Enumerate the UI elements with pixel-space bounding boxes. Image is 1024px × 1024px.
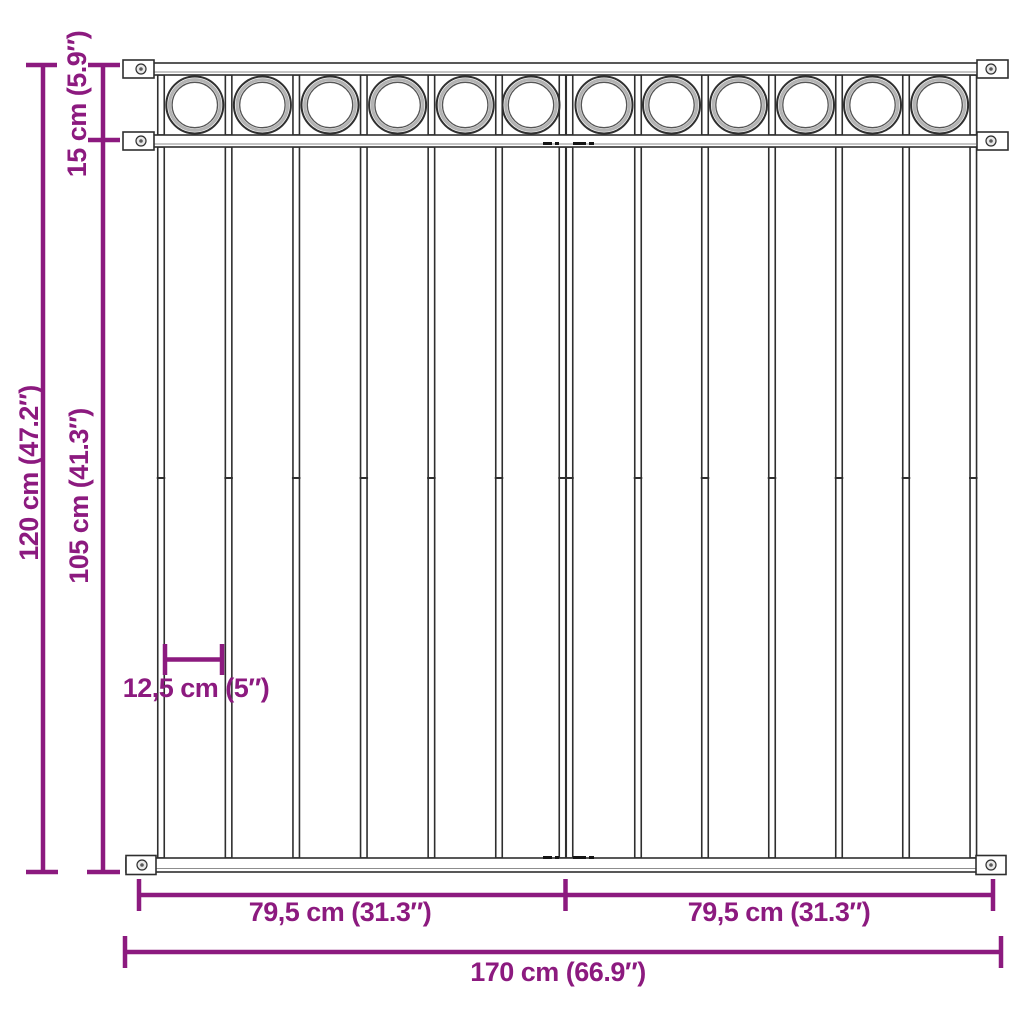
ornament-circle-inner bbox=[307, 82, 352, 127]
ornament-circle-outer bbox=[369, 77, 426, 134]
fence-post bbox=[836, 75, 843, 135]
fence-bar bbox=[225, 147, 232, 858]
fence-bar bbox=[635, 147, 642, 858]
ornament-circle-inner bbox=[443, 82, 488, 127]
fence-panel-drawing: 120 cm (47.2″) 15 cm (5.9″) 105 cm (41.3… bbox=[0, 0, 1024, 1024]
ornament-circle-ring bbox=[579, 80, 630, 131]
ornament-circle-inner bbox=[240, 82, 285, 127]
dim-top-section-label: 15 cm (5.9″) bbox=[62, 31, 92, 178]
fence-bar bbox=[566, 147, 573, 858]
ornament-circle-inner bbox=[581, 82, 626, 127]
dim-bar-spacing-label: 12,5 cm (5″) bbox=[123, 673, 270, 703]
fence-post bbox=[158, 75, 165, 135]
fence-bar bbox=[496, 147, 503, 858]
ornament-circle-inner bbox=[649, 82, 694, 127]
ornament-circle-outer bbox=[911, 77, 968, 134]
ornament-circle-outer bbox=[302, 77, 359, 134]
fence-post bbox=[769, 75, 776, 135]
fence-bar bbox=[428, 147, 435, 858]
fence-post bbox=[566, 75, 573, 135]
ornament-circle-outer bbox=[166, 77, 223, 134]
ornament-circle-inner bbox=[783, 82, 828, 127]
ornament-circle-inner bbox=[172, 82, 217, 127]
fence-post bbox=[702, 75, 709, 135]
ornament-circle-inner bbox=[850, 82, 895, 127]
fence-post bbox=[293, 75, 300, 135]
fence-post bbox=[903, 75, 910, 135]
ornament-circle-ring bbox=[646, 80, 697, 131]
ornament-circle-outer bbox=[710, 77, 767, 134]
ornament-circle-outer bbox=[576, 77, 633, 134]
dim-left-half-label: 79,5 cm (31.3″) bbox=[249, 897, 432, 927]
ornament-circle-ring bbox=[372, 80, 423, 131]
ornament-circle-inner bbox=[716, 82, 761, 127]
fence-post bbox=[361, 75, 368, 135]
ornament-circle-ring bbox=[170, 80, 221, 131]
ornament-circle-ring bbox=[713, 80, 764, 131]
ornament-circle-inner bbox=[375, 82, 420, 127]
top-rail bbox=[150, 63, 978, 75]
fence-bar bbox=[559, 147, 566, 858]
ornament-circle-ring bbox=[847, 80, 898, 131]
ornament-circle-outer bbox=[643, 77, 700, 134]
bottom-rail bbox=[126, 858, 1004, 872]
ornament-circle-inner bbox=[508, 82, 553, 127]
ornament-circle-ring bbox=[237, 80, 288, 131]
ornament-circle-ring bbox=[506, 80, 557, 131]
ornament-circle-outer bbox=[777, 77, 834, 134]
dim-right-half-label: 79,5 cm (31.3″) bbox=[688, 897, 871, 927]
ornament-circle-ring bbox=[914, 80, 965, 131]
ornament-circle-outer bbox=[503, 77, 560, 134]
fence-bar bbox=[158, 147, 165, 858]
fence-bars-and-circles bbox=[157, 75, 978, 858]
fence-bar bbox=[970, 147, 977, 858]
second-rail bbox=[150, 135, 978, 147]
fence-bar bbox=[361, 147, 368, 858]
ornament-circle-outer bbox=[844, 77, 901, 134]
ornament-circle-ring bbox=[440, 80, 491, 131]
ornament-circle-outer bbox=[437, 77, 494, 134]
dim-total-width-label: 170 cm (66.9″) bbox=[470, 957, 646, 987]
fence-bar bbox=[702, 147, 709, 858]
fence-post bbox=[496, 75, 503, 135]
fence-post bbox=[225, 75, 232, 135]
fence-post bbox=[428, 75, 435, 135]
ornament-circle-inner bbox=[917, 82, 962, 127]
product-dimension-diagram: 120 cm (47.2″) 15 cm (5.9″) 105 cm (41.3… bbox=[0, 0, 1024, 1024]
fence-bar bbox=[769, 147, 776, 858]
fence-bar bbox=[903, 147, 910, 858]
ornament-circle-ring bbox=[305, 80, 356, 131]
fence-post bbox=[635, 75, 642, 135]
ornament-circle-outer bbox=[234, 77, 291, 134]
ornament-circle-ring bbox=[780, 80, 831, 131]
fence-post bbox=[970, 75, 977, 135]
dim-bars-height-label: 105 cm (41.3″) bbox=[64, 408, 94, 584]
dim-total-height-label: 120 cm (47.2″) bbox=[14, 385, 44, 561]
fence-bar bbox=[293, 147, 300, 858]
fence-bar bbox=[836, 147, 843, 858]
